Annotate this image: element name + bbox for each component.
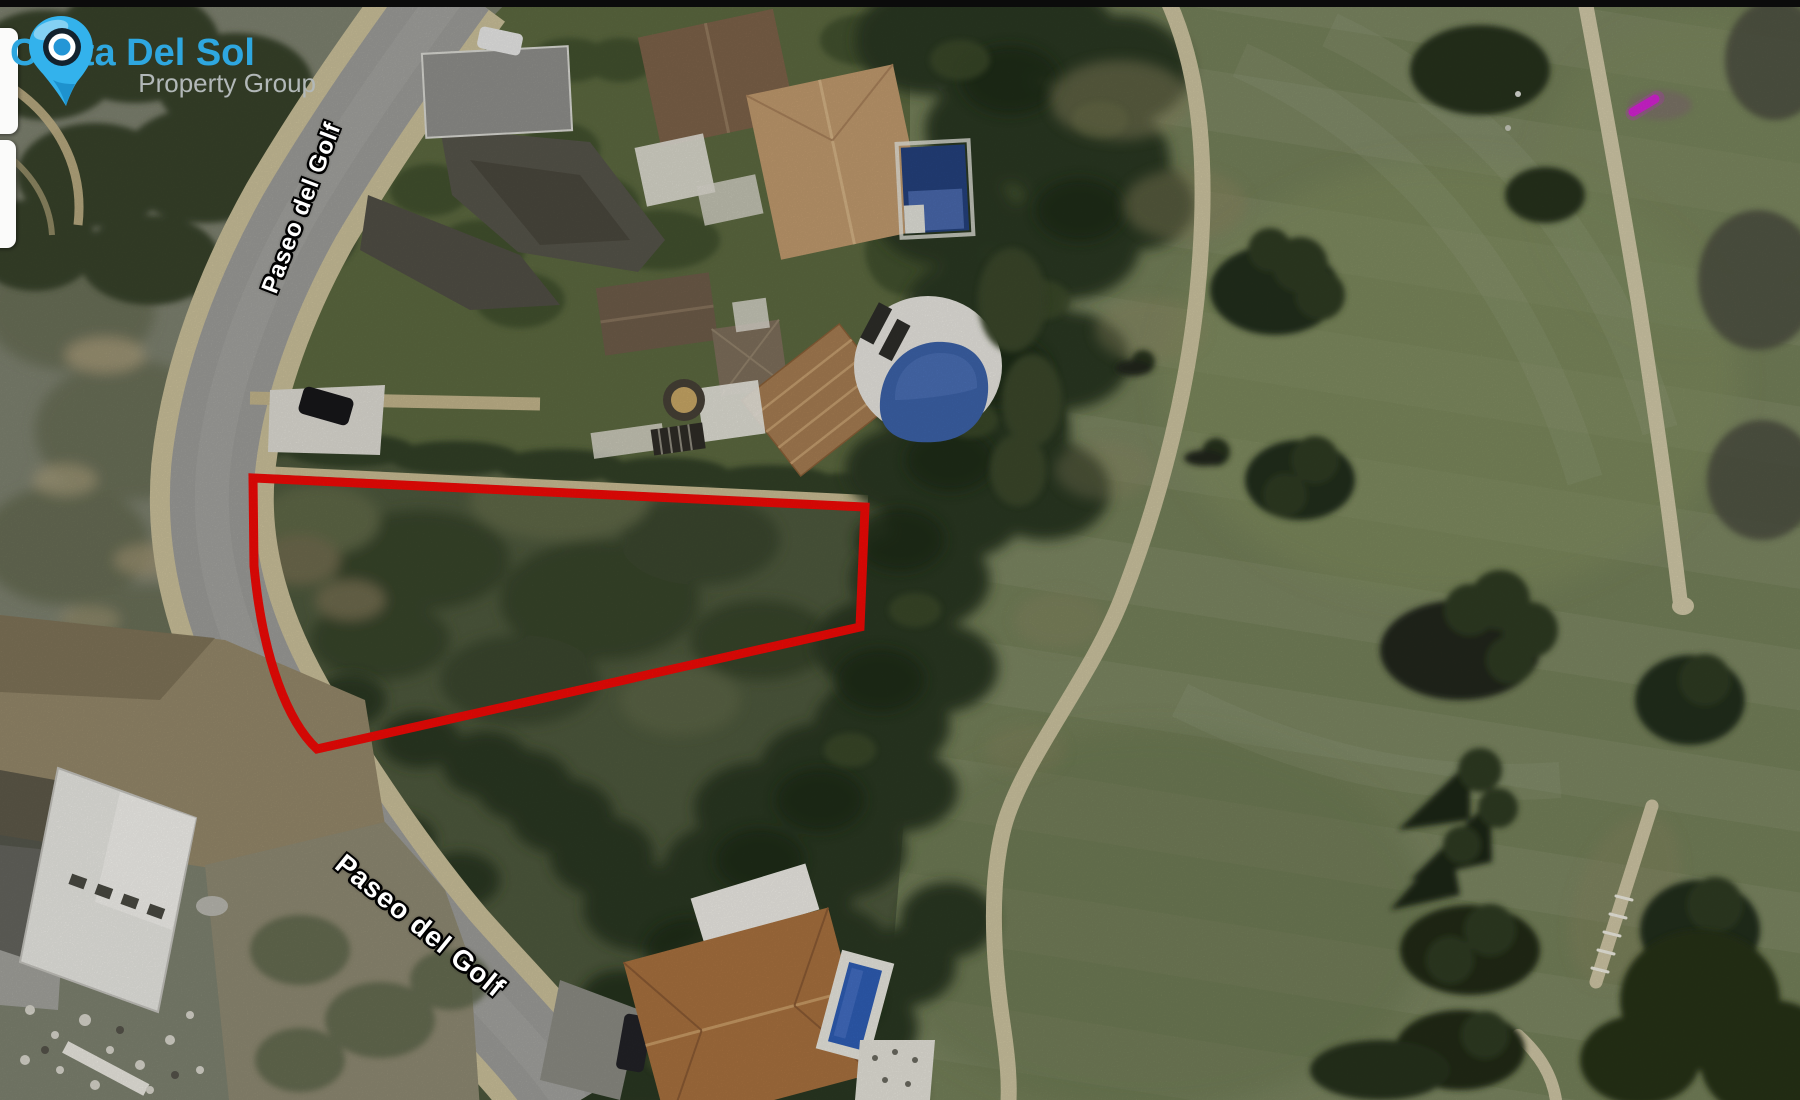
map-pin-icon <box>29 16 93 106</box>
company-logo-watermark: Costa Del Sol Property Group <box>4 12 344 137</box>
property-map-image: Costa Del Sol Property Group Paseo del G… <box>0 0 1800 1100</box>
top-border-bar <box>0 0 1800 7</box>
satellite-map <box>0 0 1800 1100</box>
grain-overlay <box>0 0 1800 1100</box>
side-panel-handle-2[interactable] <box>0 140 16 248</box>
logo-subtitle: Property Group <box>138 68 316 98</box>
